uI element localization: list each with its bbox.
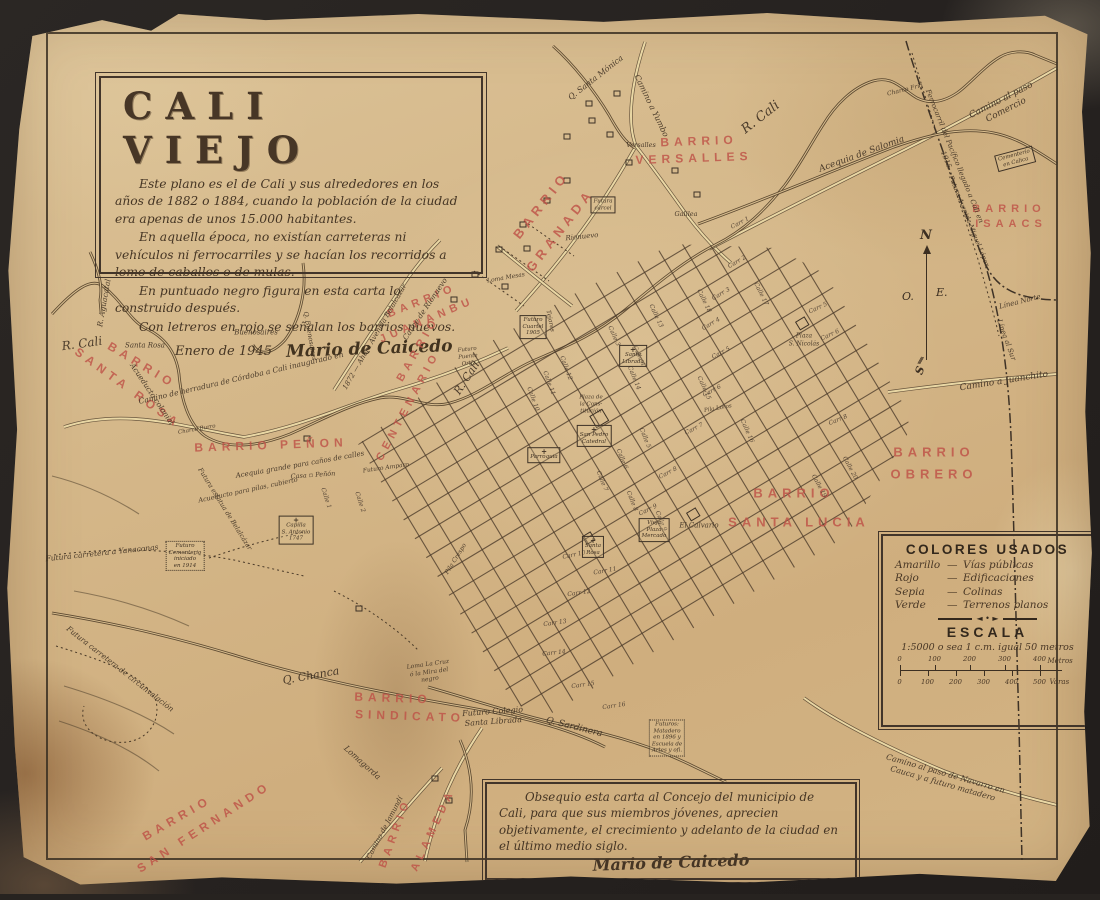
landmark-box: +Capilla S. Antonio 1747 — [279, 516, 314, 545]
compass-east-label: E. — [936, 286, 948, 299]
legend-dash: — — [947, 572, 963, 584]
compass-shaft — [926, 252, 927, 360]
scale-tick-varas — [1012, 671, 1013, 676]
scale-bar-line — [900, 670, 1062, 671]
cross-icon: + — [530, 449, 557, 454]
legend-entry: Verde—Terrenos planos — [895, 599, 1082, 611]
legend-color-meaning: Terrenos planos — [963, 599, 1048, 611]
landmark-box: +San Pedro Catedral — [577, 425, 612, 447]
cross-icon: + — [282, 518, 311, 523]
map-label: Plaza S. Nicolás — [789, 333, 819, 348]
scale-tick-varas — [900, 671, 901, 676]
legend-color-name: Verde — [895, 599, 947, 611]
legend-color-name: Sepia — [895, 586, 947, 598]
landmark-box: Futuro Cementerio iniciado en 1914 — [166, 541, 205, 571]
legend-box: COLORES USADOS Amarillo—Vías públicasRoj… — [881, 534, 1094, 727]
legend-color-meaning: Vías públicas — [963, 559, 1033, 571]
legend-color-name: Amarillo — [895, 559, 947, 571]
map-date: Enero de 1945 — [175, 344, 272, 359]
compass-south-label: S — [913, 365, 928, 377]
legend-dash: — — [947, 559, 963, 571]
legend-color-name: Rojo — [895, 572, 947, 584]
scale-tick-varas — [1040, 671, 1041, 676]
landmark-box: Vieja Plaza Mercado — [639, 518, 670, 542]
scale-bar: 01002003004000100200300400500MetrosVaras — [900, 654, 1076, 690]
title-paragraph: Este plano es el de Cali y sus alrededor… — [115, 176, 467, 228]
barrio-label: BARRIO — [972, 203, 1045, 215]
legend-dash: — — [947, 599, 963, 611]
scale-number-varas: 100 — [921, 678, 934, 686]
title-block: CALI VIEJO Este plano es el de Cali y su… — [99, 76, 483, 274]
title-paragraph: En aquella época, no existían carreteras… — [115, 229, 467, 281]
scale-tick-varas — [928, 671, 929, 676]
compass-west-label: O. — [902, 290, 914, 303]
scale-unit-meters: Metros — [1048, 657, 1073, 665]
cross-icon: + — [585, 538, 601, 543]
landmark-box: Futuro Cuartel 1905 — [520, 315, 547, 339]
dedication-text: Obsequio esta carta al Concejo del munic… — [499, 789, 843, 854]
scale-number-meters: 400 — [1033, 655, 1046, 663]
legend-entry: Sepia—Colinas — [895, 586, 1082, 598]
scale-tick-meters — [970, 665, 971, 670]
compass-north-label: N — [920, 228, 932, 243]
scale-tick-meters — [900, 665, 901, 670]
scale-number-varas: 300 — [977, 678, 990, 686]
cross-icon: + — [622, 347, 644, 352]
dedication-box: Obsequio esta carta al Concejo del munic… — [485, 782, 857, 880]
map-label: Futuro Colegio Santa Librada — [462, 705, 524, 729]
scale-title: ESCALA — [893, 624, 1082, 640]
legend-dash: — — [947, 586, 963, 598]
landmark-box: +Parroquia — [527, 447, 560, 463]
scale-tick-meters — [1040, 665, 1041, 670]
barrio-label: BARRIO — [354, 690, 432, 707]
legend-divider-ornament: ◄ • ► — [893, 614, 1082, 623]
scale-number-varas: 0 — [897, 678, 901, 686]
scale-tick-varas — [956, 671, 957, 676]
barrio-label: BARRIO — [660, 133, 738, 150]
compass-rose: N O. E. /// S — [896, 228, 956, 378]
scale-number-meters: 0 — [897, 655, 901, 663]
legend-color-meaning: Edificaciones — [963, 572, 1034, 584]
scale-tick-meters — [935, 665, 936, 670]
map-label: Buenosaires — [234, 329, 278, 338]
scale-number-meters: 300 — [998, 655, 1011, 663]
map-label: Versalles — [626, 141, 656, 149]
landmark-box: +Santa Librada — [619, 345, 647, 367]
landmark-box: +Santa Rosa — [582, 536, 604, 558]
scale-number-meters: 100 — [928, 655, 941, 663]
barrio-label: BARRIO — [893, 445, 974, 460]
map-label: Futuro Puente Ortiz — [457, 346, 479, 369]
legend-entry: Rojo—Edificaciones — [895, 572, 1082, 584]
photo-background: CALI VIEJO Este plano es el de Cali y su… — [0, 0, 1100, 894]
scale-number-varas: 500 — [1033, 678, 1046, 686]
map-paper: CALI VIEJO Este plano es el de Cali y su… — [4, 6, 1094, 888]
legend-entry: Amarillo—Vías públicas — [895, 559, 1082, 571]
map-label: Santa Rosa — [125, 342, 165, 351]
landmark-box: Futuros: Matadero en 1896 y Escuela de A… — [649, 720, 685, 757]
scale-tick-meters — [1005, 665, 1006, 670]
barrio-label: ISAACS — [975, 218, 1047, 230]
scale-number-meters: 200 — [963, 655, 976, 663]
map-title: CALI VIEJO — [123, 84, 467, 172]
legend-entries: Amarillo—Vías públicasRojo—Edificaciones… — [893, 559, 1082, 612]
map-label: Plaza de la Cons- titución — [579, 395, 602, 416]
scale-unit-varas: Varas — [1050, 678, 1070, 686]
barrio-label: SANTA LUCIA — [728, 515, 870, 530]
legend-color-meaning: Colinas — [963, 586, 1002, 598]
scale-number-varas: 400 — [1005, 678, 1018, 686]
barrio-label: OBRERO — [890, 467, 977, 482]
scale-tick-varas — [984, 671, 985, 676]
map-label: Galilea — [674, 210, 697, 218]
landmark-box: Futura cárcel — [590, 196, 615, 213]
scale-ratio-text: 1:5000 o sea 1 c.m. igual 50 metros — [893, 642, 1082, 653]
cross-icon: + — [580, 427, 609, 432]
legend-title: COLORES USADOS — [893, 542, 1082, 557]
map-label: El Calvario — [679, 522, 718, 531]
scale-number-varas: 200 — [949, 678, 962, 686]
